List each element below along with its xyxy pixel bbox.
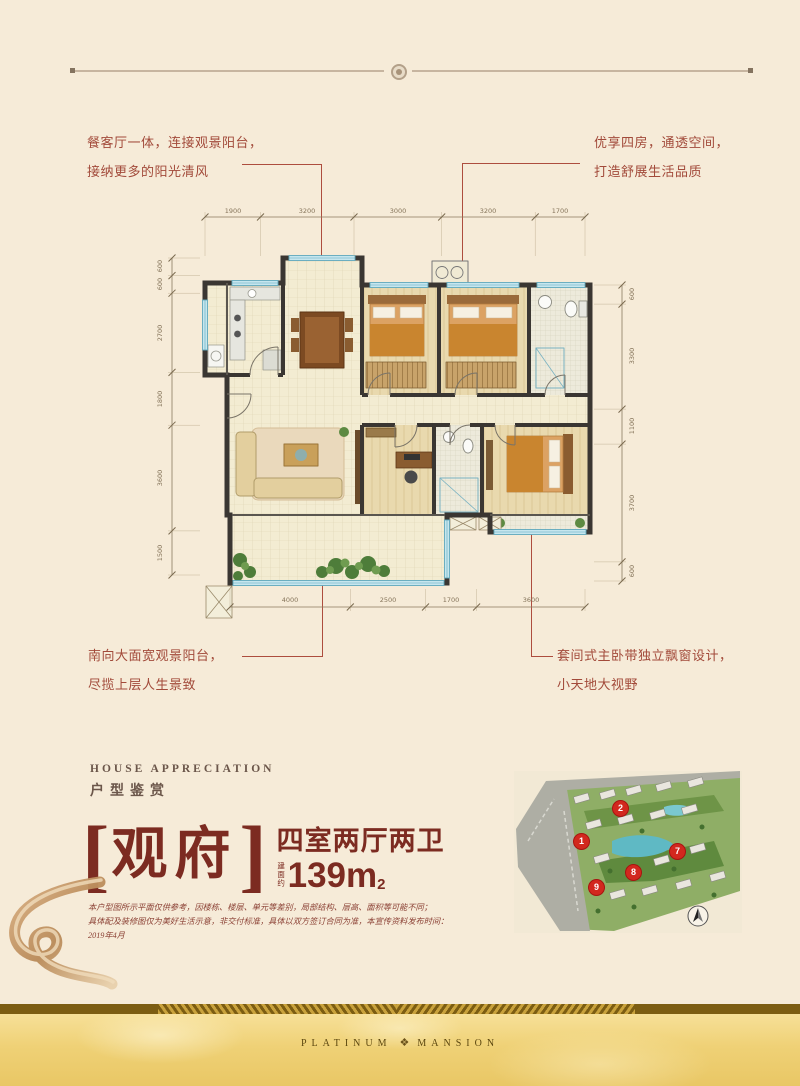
- sitemap-marker: 1: [573, 833, 590, 850]
- sitemap-aerial: [514, 771, 742, 933]
- dim-label: 3600: [511, 596, 551, 604]
- dim-label: 1800: [156, 379, 164, 419]
- dim-label: 3700: [628, 483, 636, 523]
- dim-label: 2500: [368, 596, 408, 604]
- dim-label: 1100: [628, 406, 636, 446]
- dim-label: 3200: [287, 207, 327, 215]
- area-exponent: 2: [377, 878, 385, 892]
- brand-left: PLATINUM: [301, 1038, 392, 1049]
- ribbon-decoration: [0, 872, 150, 1012]
- dim-label: 1900: [213, 207, 253, 215]
- unit-area: 建面约 139m 2: [277, 860, 445, 892]
- dim-label: 1700: [540, 207, 580, 215]
- dim-label: 1700: [431, 596, 471, 604]
- dim-label: 1500: [156, 533, 164, 573]
- dim-label: 600: [628, 274, 636, 314]
- bracket-close: ]: [239, 818, 266, 892]
- unit-layout: 四室两厅两卫: [277, 819, 445, 858]
- footer-stripe-pattern: [158, 1004, 396, 1014]
- footer-gold-band: [0, 1014, 800, 1086]
- dim-label: 3300: [628, 336, 636, 376]
- footer-stripe: [0, 1004, 800, 1014]
- dim-label: 600: [156, 264, 164, 304]
- dim-label: 3000: [378, 207, 418, 215]
- brand-right: MANSION: [417, 1038, 499, 1049]
- dim-label: 3200: [468, 207, 508, 215]
- sitemap-marker: 9: [588, 879, 605, 896]
- section-title-en: HOUSE APPRECIATION: [90, 763, 274, 775]
- sitemap-marker: 2: [612, 800, 629, 817]
- brand-line: PLATINUM❖MANSION: [0, 1036, 800, 1049]
- dim-label: 3600: [156, 458, 164, 498]
- area-prefix: 建面约: [277, 862, 286, 892]
- dim-label: 2700: [156, 313, 164, 353]
- poster-page: { "page": { "bg_color": "#f6ebd8", "acce…: [0, 0, 800, 1086]
- dim-label: 600: [628, 551, 636, 591]
- north-compass-icon: [688, 906, 708, 926]
- area-value: 139m: [288, 860, 378, 892]
- brand-emblem-icon: ❖: [400, 1037, 410, 1049]
- dim-label: 4000: [270, 596, 310, 604]
- section-title-cn: 户型鉴赏: [90, 780, 170, 800]
- sitemap-marker: 8: [625, 864, 642, 881]
- footer-stripe-pattern: [396, 1004, 635, 1014]
- sitemap-marker: 7: [669, 843, 686, 860]
